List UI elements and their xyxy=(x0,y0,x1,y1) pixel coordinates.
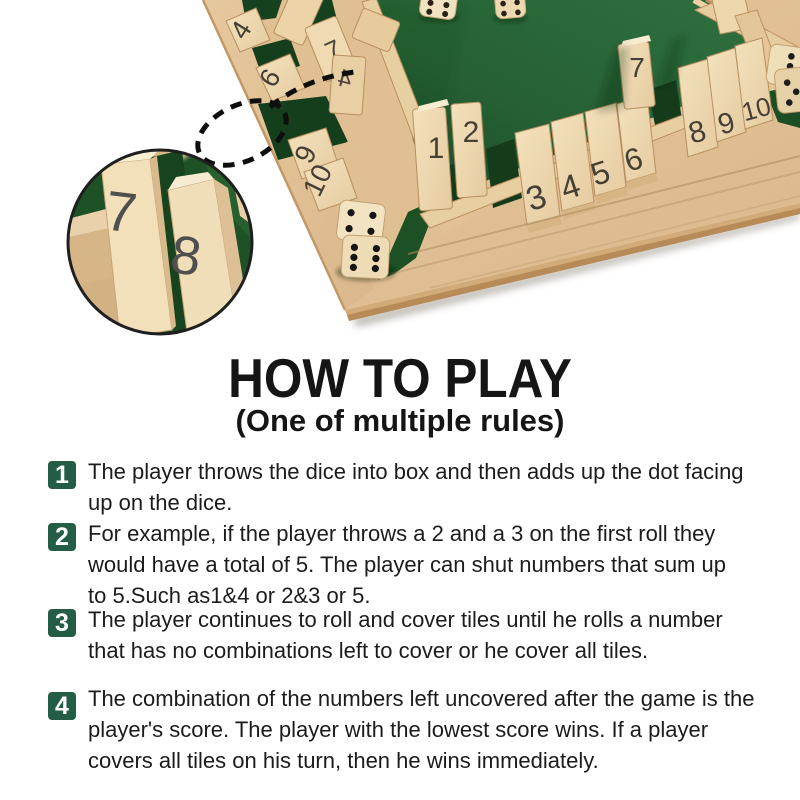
svg-text:7: 7 xyxy=(629,52,645,83)
svg-text:1: 1 xyxy=(428,132,445,165)
svg-text:2: 2 xyxy=(463,116,480,149)
